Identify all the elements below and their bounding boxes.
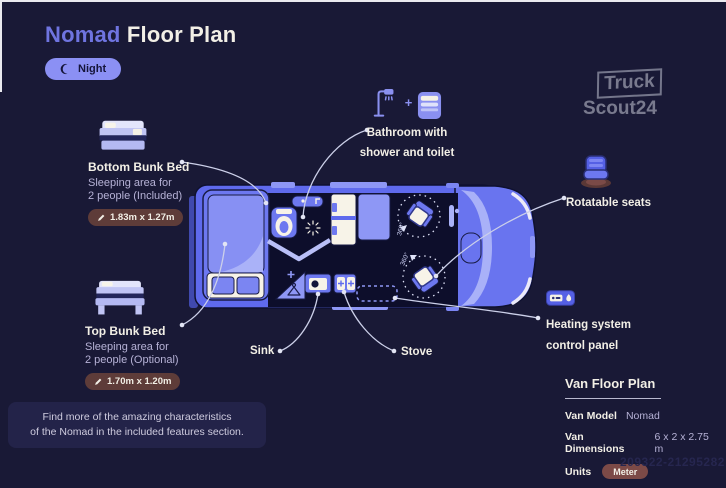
bottom-bunk-dimensions: 1.83m x 1.27m (110, 212, 174, 223)
moon-icon (60, 63, 72, 75)
van-dimensions-label: Van Dimensions (565, 431, 646, 455)
pencil-icon (94, 377, 103, 386)
stove-label: Stove (401, 346, 432, 358)
top-bunk-bed-icon (91, 279, 149, 319)
bed-area (203, 190, 269, 300)
pencil-icon (97, 213, 106, 222)
rotatable-seats-label: Rotatable seats (566, 196, 676, 210)
page-title: Nomad Floor Plan (45, 22, 236, 48)
logo-line2: Scout24 (583, 98, 673, 120)
night-mode-label: Night (78, 63, 106, 75)
top-bunk-desc1: Sleeping area for (85, 341, 205, 354)
plus-sign: + (405, 95, 413, 110)
page-title-accent: Nomad (45, 22, 121, 47)
info-row-dimensions: Van Dimensions 6 x 2 x 2.75 m (565, 431, 720, 455)
bottom-bunk-desc1: Sleeping area for (88, 177, 208, 190)
logo-line1: Truck (597, 68, 662, 98)
toilet-icon (417, 91, 442, 120)
callout-heating: Heating system control panel (546, 290, 656, 353)
heating-label-line2: control panel (546, 339, 656, 353)
night-mode-toggle[interactable]: Night (45, 58, 121, 80)
listing-watermark: 209322-21295282 (620, 455, 725, 469)
wardrobe (331, 194, 356, 245)
callout-bathroom: + Bathroom with shower and toilet (348, 84, 466, 160)
bottom-bunk-desc2: 2 people (Included) (88, 190, 208, 203)
callout-rotatable-seats: Rotatable seats (566, 155, 676, 210)
heating-control-icon (546, 290, 575, 306)
top-bunk-desc2: 2 people (Optional) (85, 354, 205, 367)
bottom-bunk-bed-icon (94, 119, 152, 155)
note-line1: Find more of the amazing characteristics (42, 410, 231, 425)
van-dimensions-value: 6 x 2 x 2.75 m (655, 431, 720, 455)
bench-seat (358, 194, 390, 240)
info-panel-title: Van Floor Plan (565, 376, 720, 391)
sink-label: Sink (250, 345, 274, 357)
units-label: Units (565, 466, 591, 478)
top-bunk-dimensions: 1.70m x 1.20m (107, 376, 171, 387)
info-panel-divider (565, 398, 661, 399)
heating-label-line1: Heating system (546, 318, 656, 332)
van-model-value: Nomad (626, 410, 660, 422)
van-illustration: 360° 360° (189, 182, 536, 311)
page-title-rest: Floor Plan (127, 22, 237, 47)
seat-icon (576, 155, 616, 189)
bottom-bunk-dimensions-badge: 1.83m x 1.27m (88, 209, 183, 226)
truckscout24-logo: Truck Scout24 (583, 70, 673, 120)
top-bunk-title: Top Bunk Bed (85, 324, 205, 338)
van-info-panel: Van Floor Plan Van Model Nomad Van Dimen… (565, 376, 720, 488)
features-note: Find more of the amazing characteristics… (8, 402, 266, 448)
callout-bottom-bunk: Bottom Bunk Bed Sleeping area for 2 peop… (88, 119, 208, 227)
page: { "colors": { "background": "#191936", "… (0, 0, 726, 480)
bottom-bunk-title: Bottom Bunk Bed (88, 160, 208, 174)
top-bunk-dimensions-badge: 1.70m x 1.20m (85, 373, 180, 390)
note-line2: of the Nomad in the included features se… (30, 425, 244, 440)
shower-icon (372, 87, 400, 120)
callout-top-bunk: Top Bunk Bed Sleeping area for 2 people … (85, 279, 205, 391)
bathroom-label-line1: Bathroom with (348, 126, 466, 140)
info-row-model: Van Model Nomad (565, 410, 720, 422)
van-model-label: Van Model (565, 410, 617, 422)
bathroom-label-line2: shower and toilet (348, 146, 466, 160)
